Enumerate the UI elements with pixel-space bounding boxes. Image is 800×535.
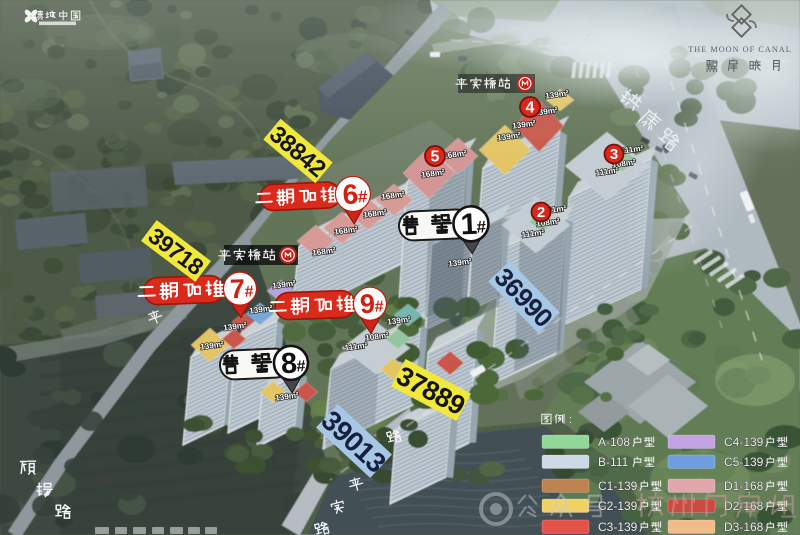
svg-text::: : xyxy=(569,414,572,426)
svg-text:#: # xyxy=(244,283,254,300)
svg-text:#: # xyxy=(374,298,384,315)
svg-text:B-111: B-111 xyxy=(598,455,629,469)
svg-text:9: 9 xyxy=(359,289,375,320)
svg-text:THE MOON OF CANAL: THE MOON OF CANAL xyxy=(688,45,792,54)
svg-text:7: 7 xyxy=(229,274,245,305)
svg-text:C1-139: C1-139 xyxy=(598,479,638,493)
svg-text:3: 3 xyxy=(610,146,618,163)
svg-text:#: # xyxy=(476,217,487,236)
svg-text:A-108: A-108 xyxy=(598,435,630,449)
svg-text:C3-139: C3-139 xyxy=(598,520,638,534)
svg-text:5: 5 xyxy=(431,149,440,166)
svg-text:2: 2 xyxy=(537,204,545,221)
svg-text:1: 1 xyxy=(460,208,478,242)
svg-text:6: 6 xyxy=(342,179,359,211)
svg-text:4: 4 xyxy=(526,100,535,117)
svg-text:#: # xyxy=(358,187,369,206)
svg-text:C5-139: C5-139 xyxy=(724,455,764,469)
svg-text:#: # xyxy=(296,358,306,375)
svg-text:D3-168: D3-168 xyxy=(724,520,764,534)
svg-text:D1-168: D1-168 xyxy=(724,479,764,493)
svg-text:C4-139: C4-139 xyxy=(724,435,764,449)
svg-text:8: 8 xyxy=(280,348,298,381)
